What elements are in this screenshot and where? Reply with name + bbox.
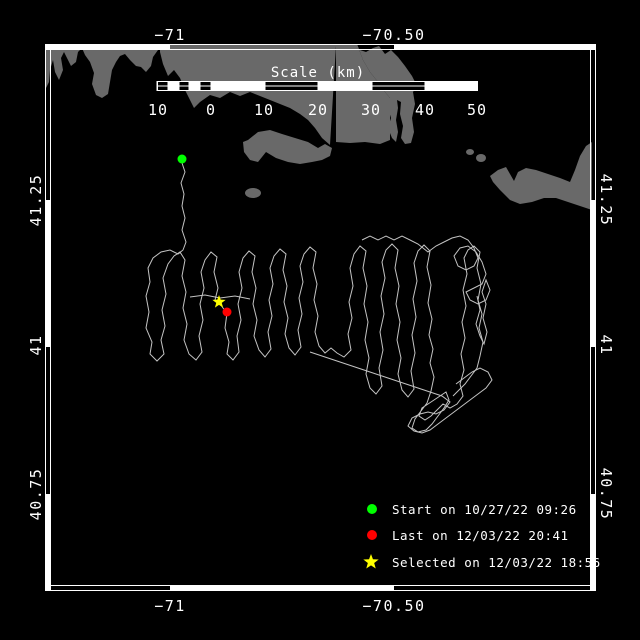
scale-number: 10 — [254, 101, 274, 119]
legend-label-selected: Selected on 12/03/22 18:56 — [392, 555, 601, 570]
scale-number: 40 — [415, 101, 435, 119]
latitude-axis-right: 41.25 41 40.75 — [597, 174, 615, 521]
lat-label-left: 41.25 — [27, 174, 45, 227]
scale-number: 20 — [308, 101, 328, 119]
last-dot-icon — [367, 530, 377, 540]
lat-label-right: 41 — [597, 334, 615, 355]
scale-bar-cells — [157, 81, 478, 91]
scale-number: 50 — [467, 101, 487, 119]
lon-label-top: −70.50 — [362, 26, 425, 44]
scale-bar-title: Scale (km) — [271, 65, 365, 81]
lon-label-bottom: −71 — [154, 597, 186, 615]
legend-item-start: Start on 10/27/22 09:26 — [367, 502, 577, 517]
scale-number: 10 — [148, 101, 168, 119]
latitude-axis-left: 41.25 41 40.75 — [27, 174, 45, 521]
start-dot-icon — [367, 504, 377, 514]
lat-label-left: 40.75 — [27, 468, 45, 521]
start-point-marker[interactable] — [178, 155, 187, 164]
lon-label-top: −71 — [154, 26, 186, 44]
lat-label-right: 40.75 — [597, 468, 615, 521]
track-map-canvas[interactable]: Scale (km) 10 0 10 20 30 40 50 −71 −70.5… — [0, 0, 640, 640]
lat-label-left: 41 — [27, 334, 45, 355]
map-application-window: Scale (km) 10 0 10 20 30 40 50 −71 −70.5… — [0, 0, 640, 640]
scale-number: 0 — [206, 101, 216, 119]
lon-label-bottom: −70.50 — [362, 597, 425, 615]
legend-item-last: Last on 12/03/22 20:41 — [367, 528, 569, 543]
legend-label-last: Last on 12/03/22 20:41 — [392, 528, 569, 543]
last-point-marker[interactable] — [223, 308, 232, 317]
legend-item-selected: Selected on 12/03/22 18:56 — [363, 554, 600, 570]
legend-label-start: Start on 10/27/22 09:26 — [392, 502, 577, 517]
legend: Start on 10/27/22 09:26 Last on 12/03/22… — [363, 502, 600, 570]
scale-number: 30 — [361, 101, 381, 119]
lat-label-right: 41.25 — [597, 174, 615, 227]
